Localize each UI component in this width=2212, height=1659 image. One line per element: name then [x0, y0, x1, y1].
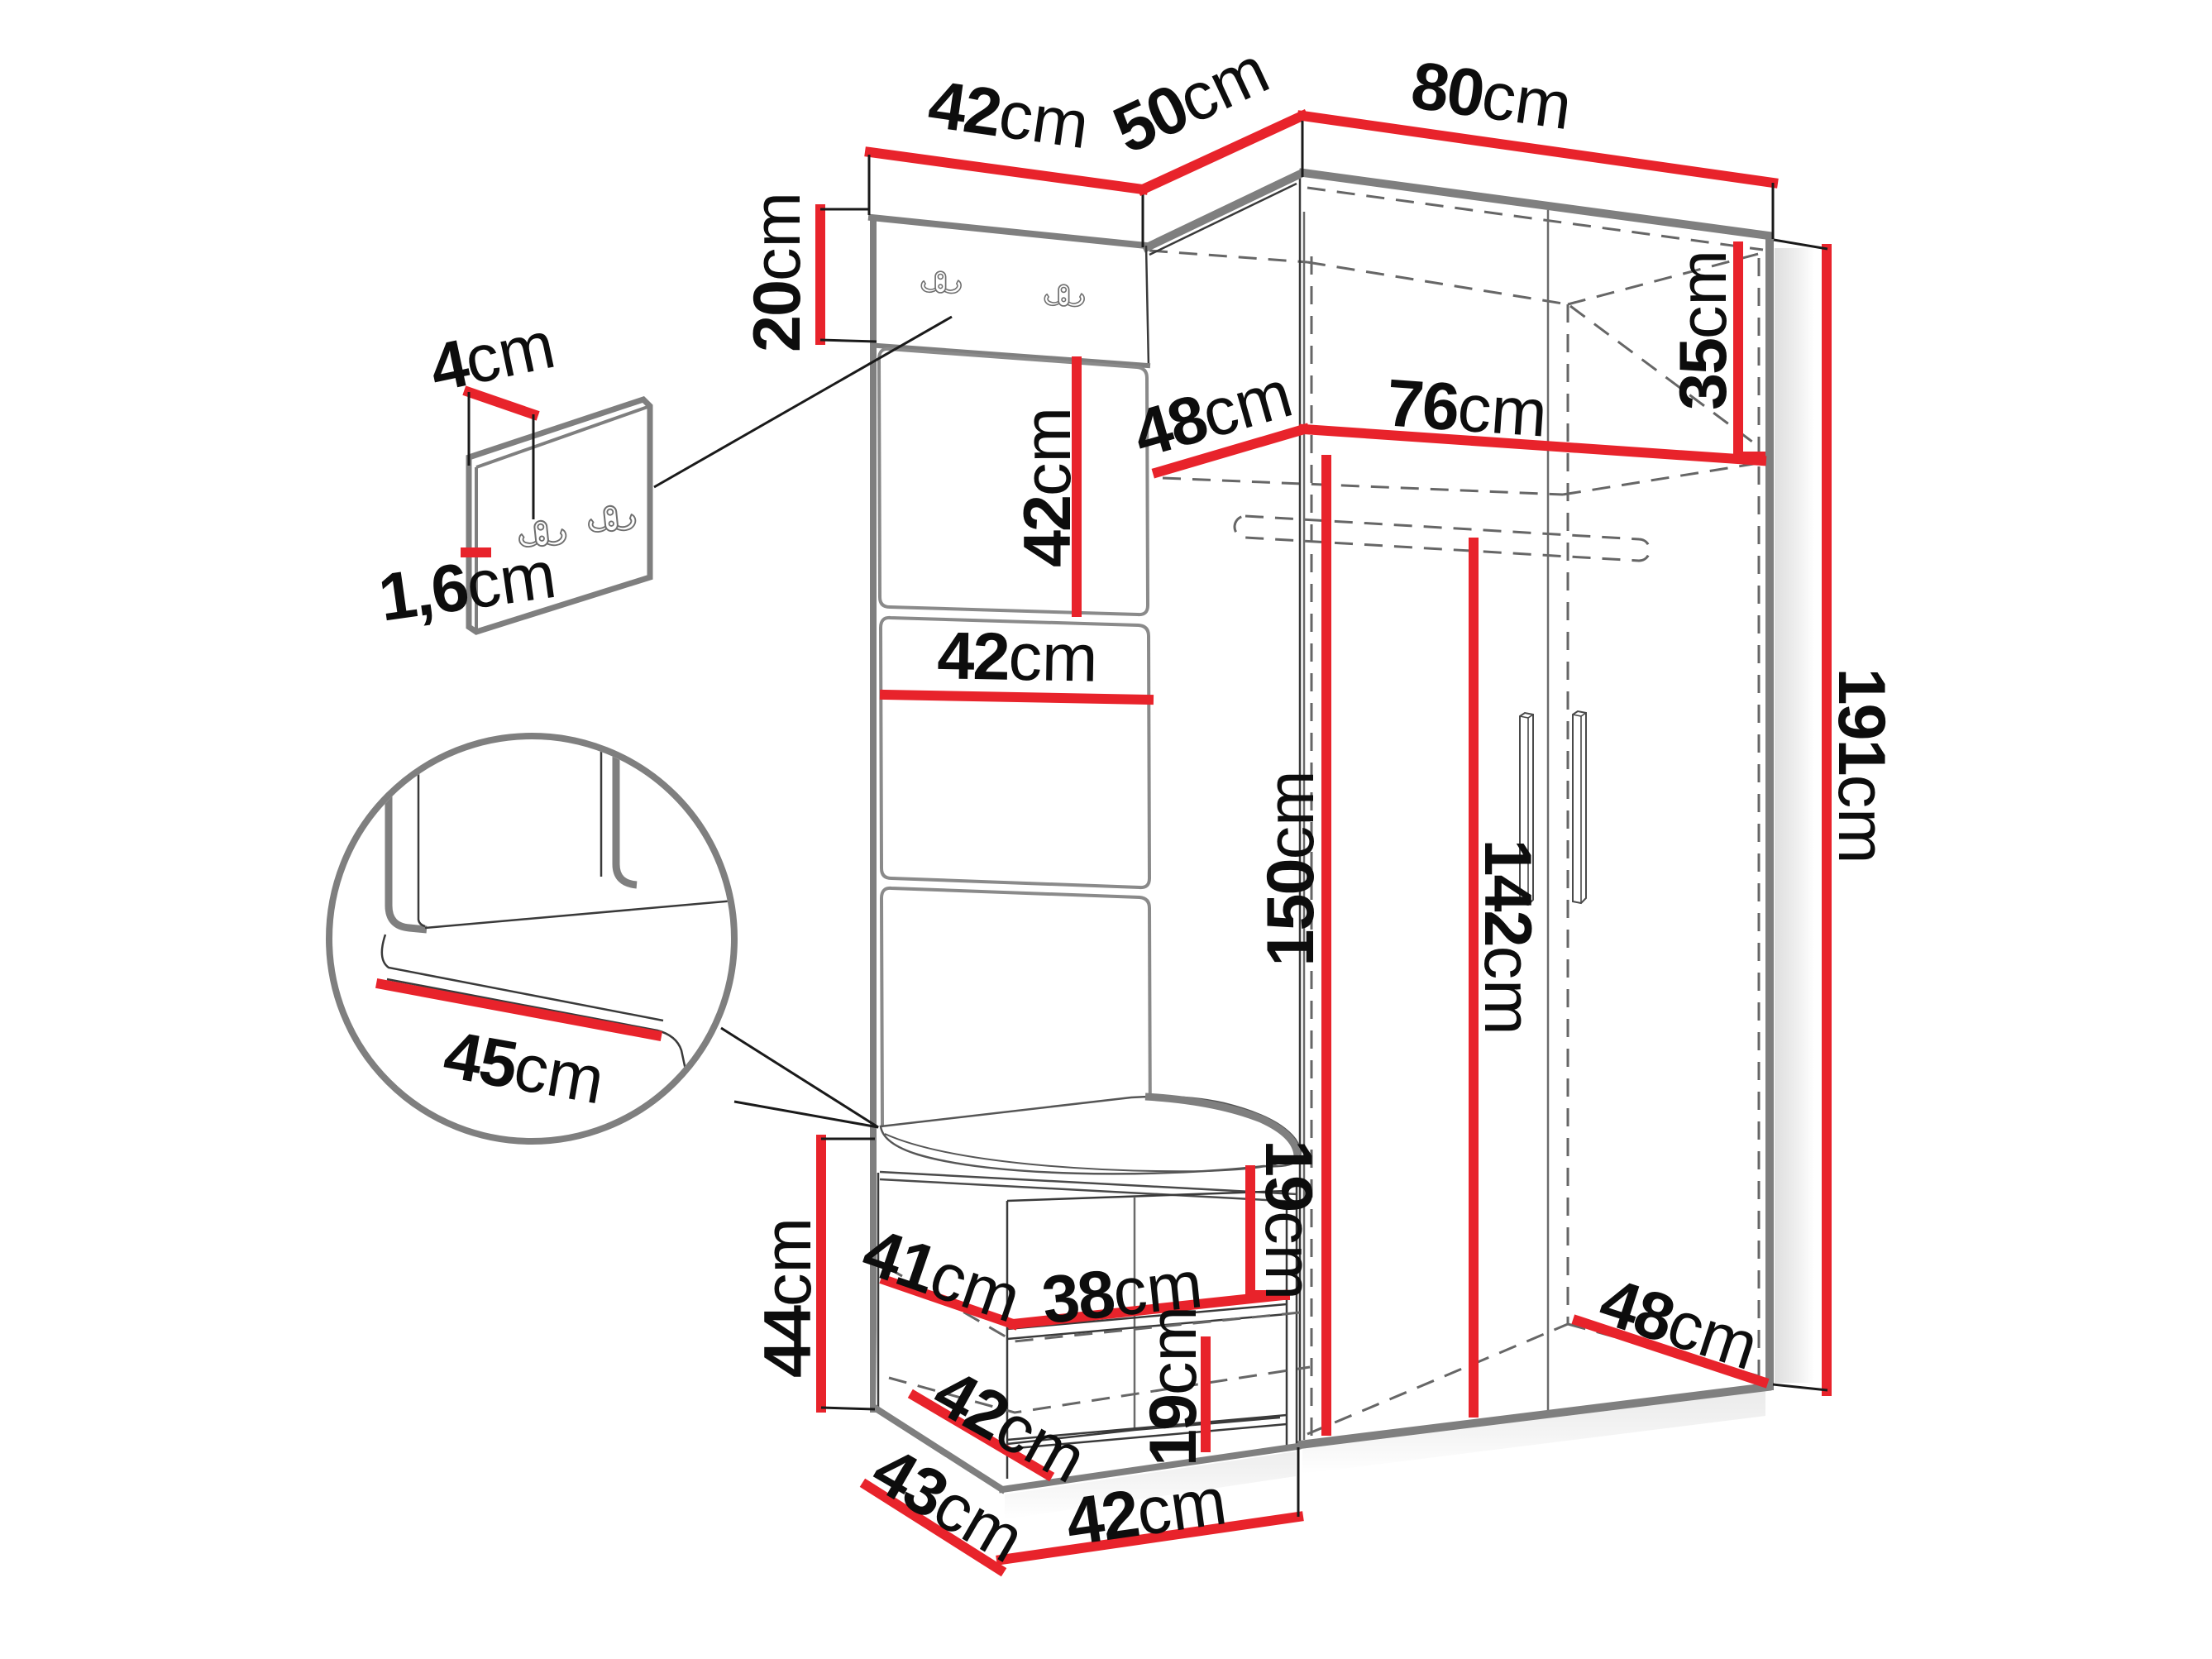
svg-text:191cm: 191cm [1824, 667, 1899, 863]
svg-text:44cm: 44cm [751, 1217, 825, 1378]
svg-text:19cm: 19cm [1251, 1140, 1326, 1300]
svg-text:76cm: 76cm [1384, 366, 1550, 451]
svg-text:20cm: 20cm [740, 192, 815, 352]
svg-text:142cm: 142cm [1470, 839, 1545, 1035]
svg-text:19cm: 19cm [1136, 1306, 1211, 1466]
svg-text:42cm: 42cm [937, 619, 1099, 696]
svg-text:35cm: 35cm [1666, 250, 1741, 410]
svg-text:150cm: 150cm [1254, 770, 1328, 966]
svg-text:42cm: 42cm [1010, 407, 1085, 567]
